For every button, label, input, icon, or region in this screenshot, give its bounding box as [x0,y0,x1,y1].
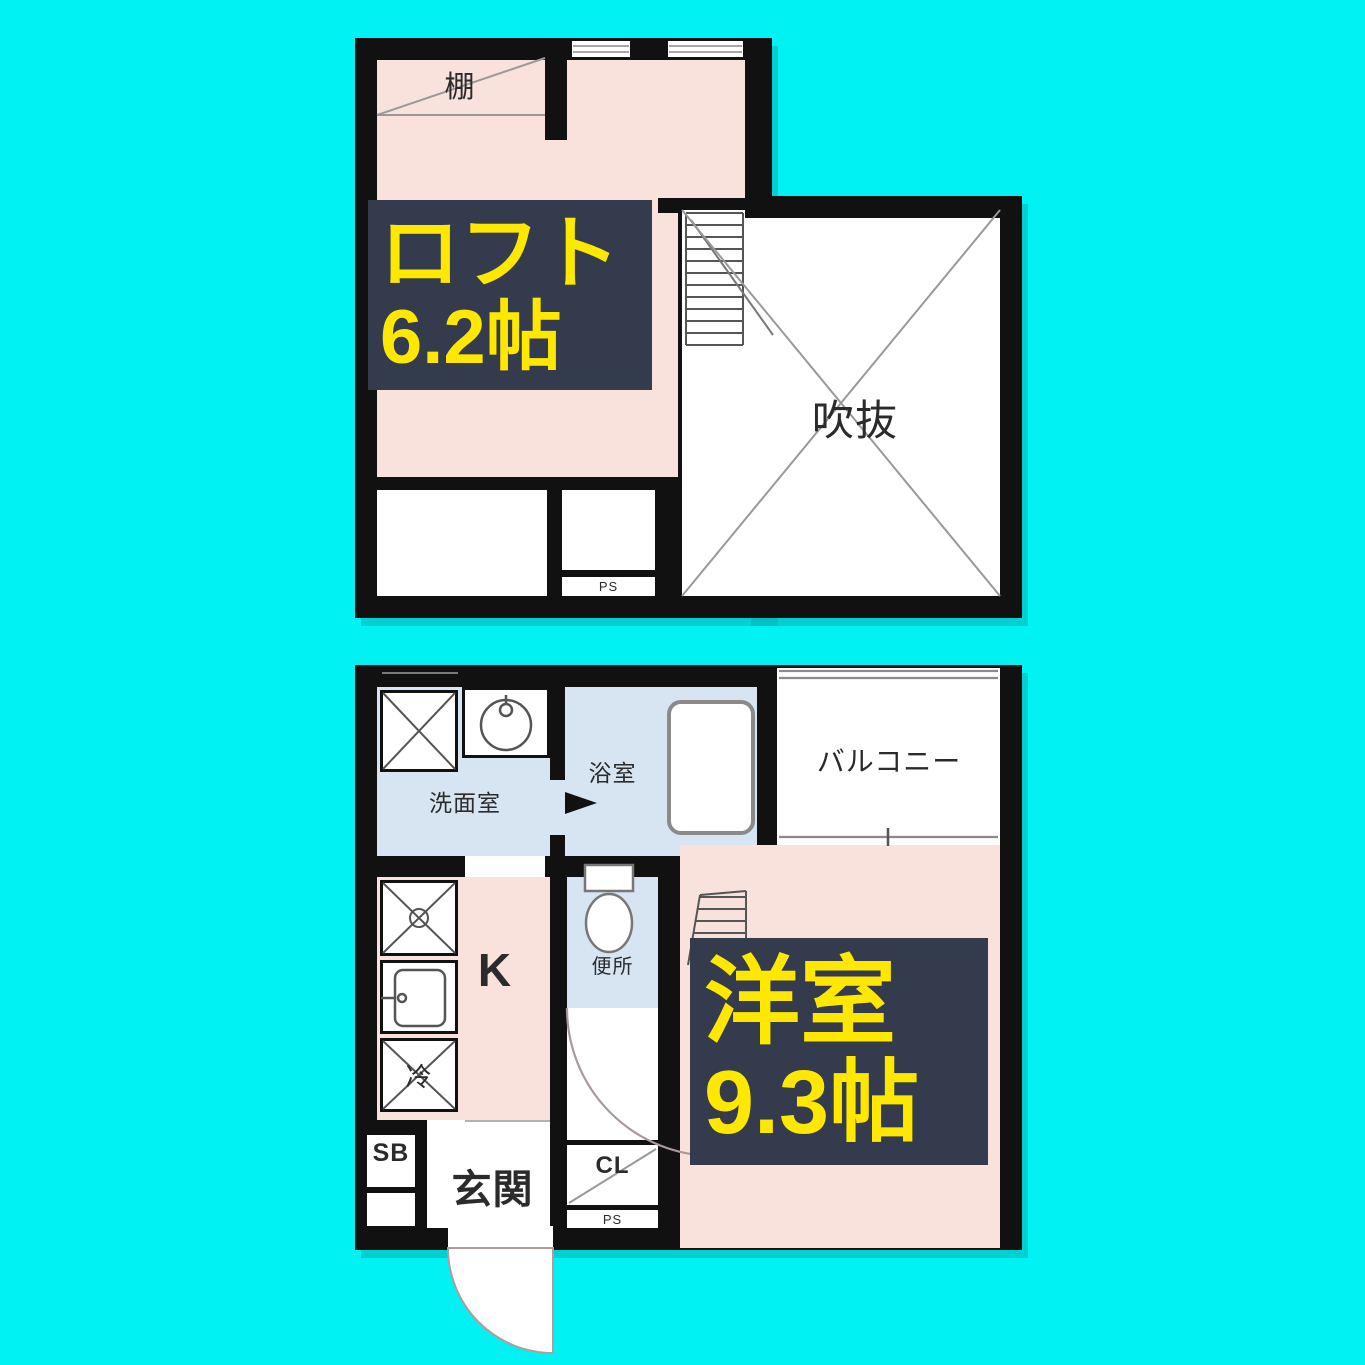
entrance-label: 玄関 [435,1161,550,1211]
western-room-name-label: 洋室 [704,951,988,1055]
void-label: 吹抜 [791,392,919,442]
toilet-label: 便所 [567,951,658,977]
washroom-label: 洗面室 [385,787,545,815]
shoe-box-label: SB [367,1135,415,1171]
kitchen-label: K [450,943,540,997]
upper-window-lines [573,46,742,52]
bathroom-door-mark [565,792,597,814]
lower-floor-plan: 洗面室 浴室 バルコニー K 便所 冷 SB 玄関 CL PS 洋室 9.3帖 [355,665,1022,1365]
toilet-icon [585,865,633,952]
upper-floor-plan: 棚 吹抜 PS ロフト 6.2帖 [355,38,1022,618]
kitchen-sink-icon [381,970,445,1026]
shelf-label: 棚 [395,66,525,102]
loft-label-box: ロフト 6.2帖 [368,200,652,390]
upper-pipe-space-label: PS [562,577,655,596]
western-room-size-label: 9.3帖 [704,1055,988,1152]
western-room-label-box: 洋室 9.3帖 [690,938,988,1165]
bathroom-label: 浴室 [567,757,658,785]
balcony-window [779,828,998,846]
closet-label: CL [567,1151,658,1181]
floorplan-canvas: 棚 吹抜 PS ロフト 6.2帖 [0,0,1365,1365]
washing-machine-cross [383,693,455,769]
loft-size-label: 6.2帖 [380,297,652,379]
loft-name-label: ロフト [380,211,652,297]
stove-cross [383,883,455,953]
balcony-label: バルコニー [783,743,995,777]
vanity-sink-icon [481,695,531,750]
balcony-railing [779,671,998,678]
staircase-upper [686,213,773,345]
lower-pipe-space-label: PS [567,1210,658,1228]
refrigerator-label: 冷 [380,1053,458,1097]
entrance-door-swing [448,1248,553,1353]
